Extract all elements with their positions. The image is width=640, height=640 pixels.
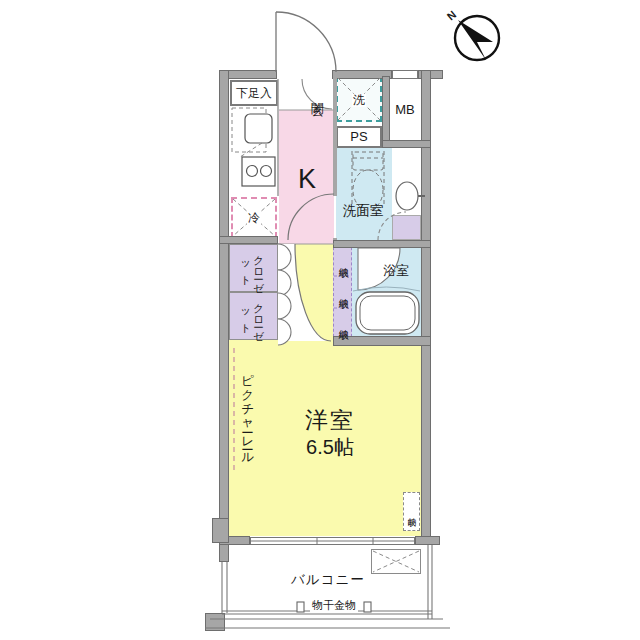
floor-plan: 下足入 玄関 洗 MB PS K 冷 洗面室 クローゼット クローゼット 収納 … xyxy=(0,0,640,640)
entrance-label: 玄関 xyxy=(310,77,323,109)
room-name-label: 洋室 xyxy=(305,408,355,432)
balcony-window xyxy=(250,537,415,545)
picture-rail-label: ピクチャーレール xyxy=(240,348,253,476)
bathroom-label: 浴室 xyxy=(383,264,409,278)
wall-left xyxy=(219,70,229,562)
washroom-region xyxy=(336,148,392,240)
washroom-corner-region xyxy=(392,215,421,240)
compass-north-label: N xyxy=(445,9,459,23)
entrance-door-icon xyxy=(276,12,336,109)
washroom-label: 洗面室 xyxy=(343,204,384,218)
mb-door xyxy=(392,70,418,79)
balcony-label: バルコニー xyxy=(291,573,365,587)
wall-balcony-right xyxy=(415,536,440,545)
washer-label: 洗 xyxy=(352,94,366,107)
pipe-space-label: PS xyxy=(350,130,367,144)
wall-mb-bottom xyxy=(382,140,431,148)
storage-label-1: 収納 xyxy=(338,248,349,272)
stove-icon xyxy=(242,157,275,186)
wall-kitchen-column xyxy=(333,73,337,196)
room-size-label: 6.5帖 xyxy=(306,437,354,458)
hall-wedge-region xyxy=(278,244,334,340)
shoe-cabinet-label: 下足入 xyxy=(236,87,272,100)
wall-washroom-bottom xyxy=(333,240,431,248)
wall-pilaster-left xyxy=(212,518,229,543)
ac-unit-box xyxy=(371,549,421,574)
closet-lower-label: クローゼット xyxy=(239,295,265,337)
bathroom-region xyxy=(352,248,421,336)
storage-label-3: 収納 xyxy=(338,310,349,334)
compass-icon xyxy=(455,16,499,60)
wall-kitchen-closet xyxy=(219,236,278,244)
meter-box-label: MB xyxy=(395,103,415,117)
room-storage-label: 収納 xyxy=(408,501,417,521)
pillar-bottom-left xyxy=(205,613,225,631)
kitchen-sink-icon xyxy=(232,108,272,157)
wall-bathroom-bottom xyxy=(333,336,431,346)
wall-ps-mb xyxy=(382,76,390,148)
closet-upper-label: クローゼット xyxy=(239,247,265,289)
storage-label-2: 収納 xyxy=(338,279,349,303)
fridge-label: 冷 xyxy=(247,212,261,225)
kitchen-label: K xyxy=(298,165,316,193)
drying-hardware-label: 物干金物 xyxy=(310,600,358,612)
